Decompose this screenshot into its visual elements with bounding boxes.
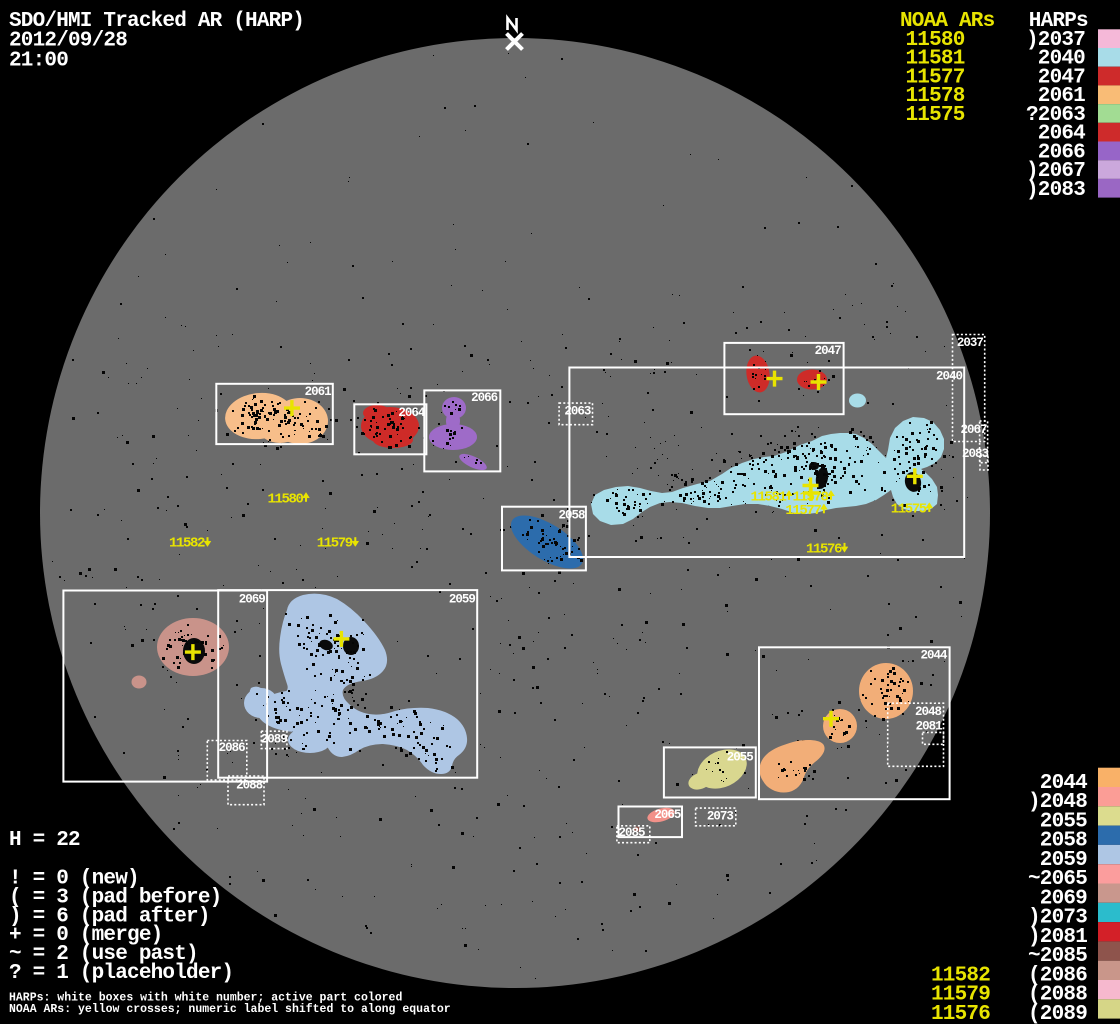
- svg-text:2066: 2066: [471, 391, 498, 405]
- svg-text:21:00: 21:00: [9, 49, 68, 72]
- svg-text:2065: 2065: [654, 808, 681, 822]
- svg-text:11577: 11577: [785, 503, 821, 519]
- svg-text:? = 1 (placeholder): ? = 1 (placeholder): [9, 962, 233, 985]
- svg-text:2069: 2069: [239, 592, 266, 606]
- svg-text:2089: 2089: [261, 733, 288, 747]
- svg-text:2063: 2063: [564, 404, 591, 418]
- svg-text:(2089: (2089: [1028, 1003, 1087, 1024]
- svg-text:11579: 11579: [317, 536, 353, 552]
- svg-text:2073: 2073: [707, 810, 734, 824]
- svg-text:H = 22: H = 22: [9, 829, 80, 852]
- svg-text:2059: 2059: [449, 593, 476, 607]
- svg-text:2037: 2037: [957, 336, 984, 350]
- svg-text:2058: 2058: [558, 509, 585, 523]
- svg-text:2047: 2047: [815, 344, 842, 358]
- svg-text:2085: 2085: [619, 826, 646, 840]
- svg-text:2086: 2086: [219, 741, 246, 755]
- svg-text:2048: 2048: [915, 705, 942, 719]
- svg-text:2040: 2040: [936, 370, 963, 384]
- svg-text:11575: 11575: [906, 104, 965, 127]
- svg-text:11575: 11575: [891, 502, 927, 518]
- svg-text:2055: 2055: [727, 751, 754, 765]
- svg-text:11576: 11576: [931, 1003, 990, 1024]
- svg-text:11580: 11580: [268, 491, 304, 507]
- svg-text:2044: 2044: [920, 649, 948, 663]
- svg-text:11576: 11576: [806, 541, 842, 557]
- svg-text:2064: 2064: [398, 406, 426, 420]
- svg-text:2088: 2088: [236, 779, 263, 793]
- svg-text:NOAA ARs: yellow crosses; nume: NOAA ARs: yellow crosses; numeric label …: [9, 1003, 451, 1016]
- svg-text:2081: 2081: [916, 719, 943, 733]
- svg-text:11582: 11582: [169, 536, 205, 552]
- svg-text:2061: 2061: [305, 385, 332, 399]
- svg-text:2083: 2083: [962, 447, 989, 461]
- svg-text:)2083: )2083: [1026, 179, 1085, 202]
- svg-text:2067: 2067: [961, 423, 988, 437]
